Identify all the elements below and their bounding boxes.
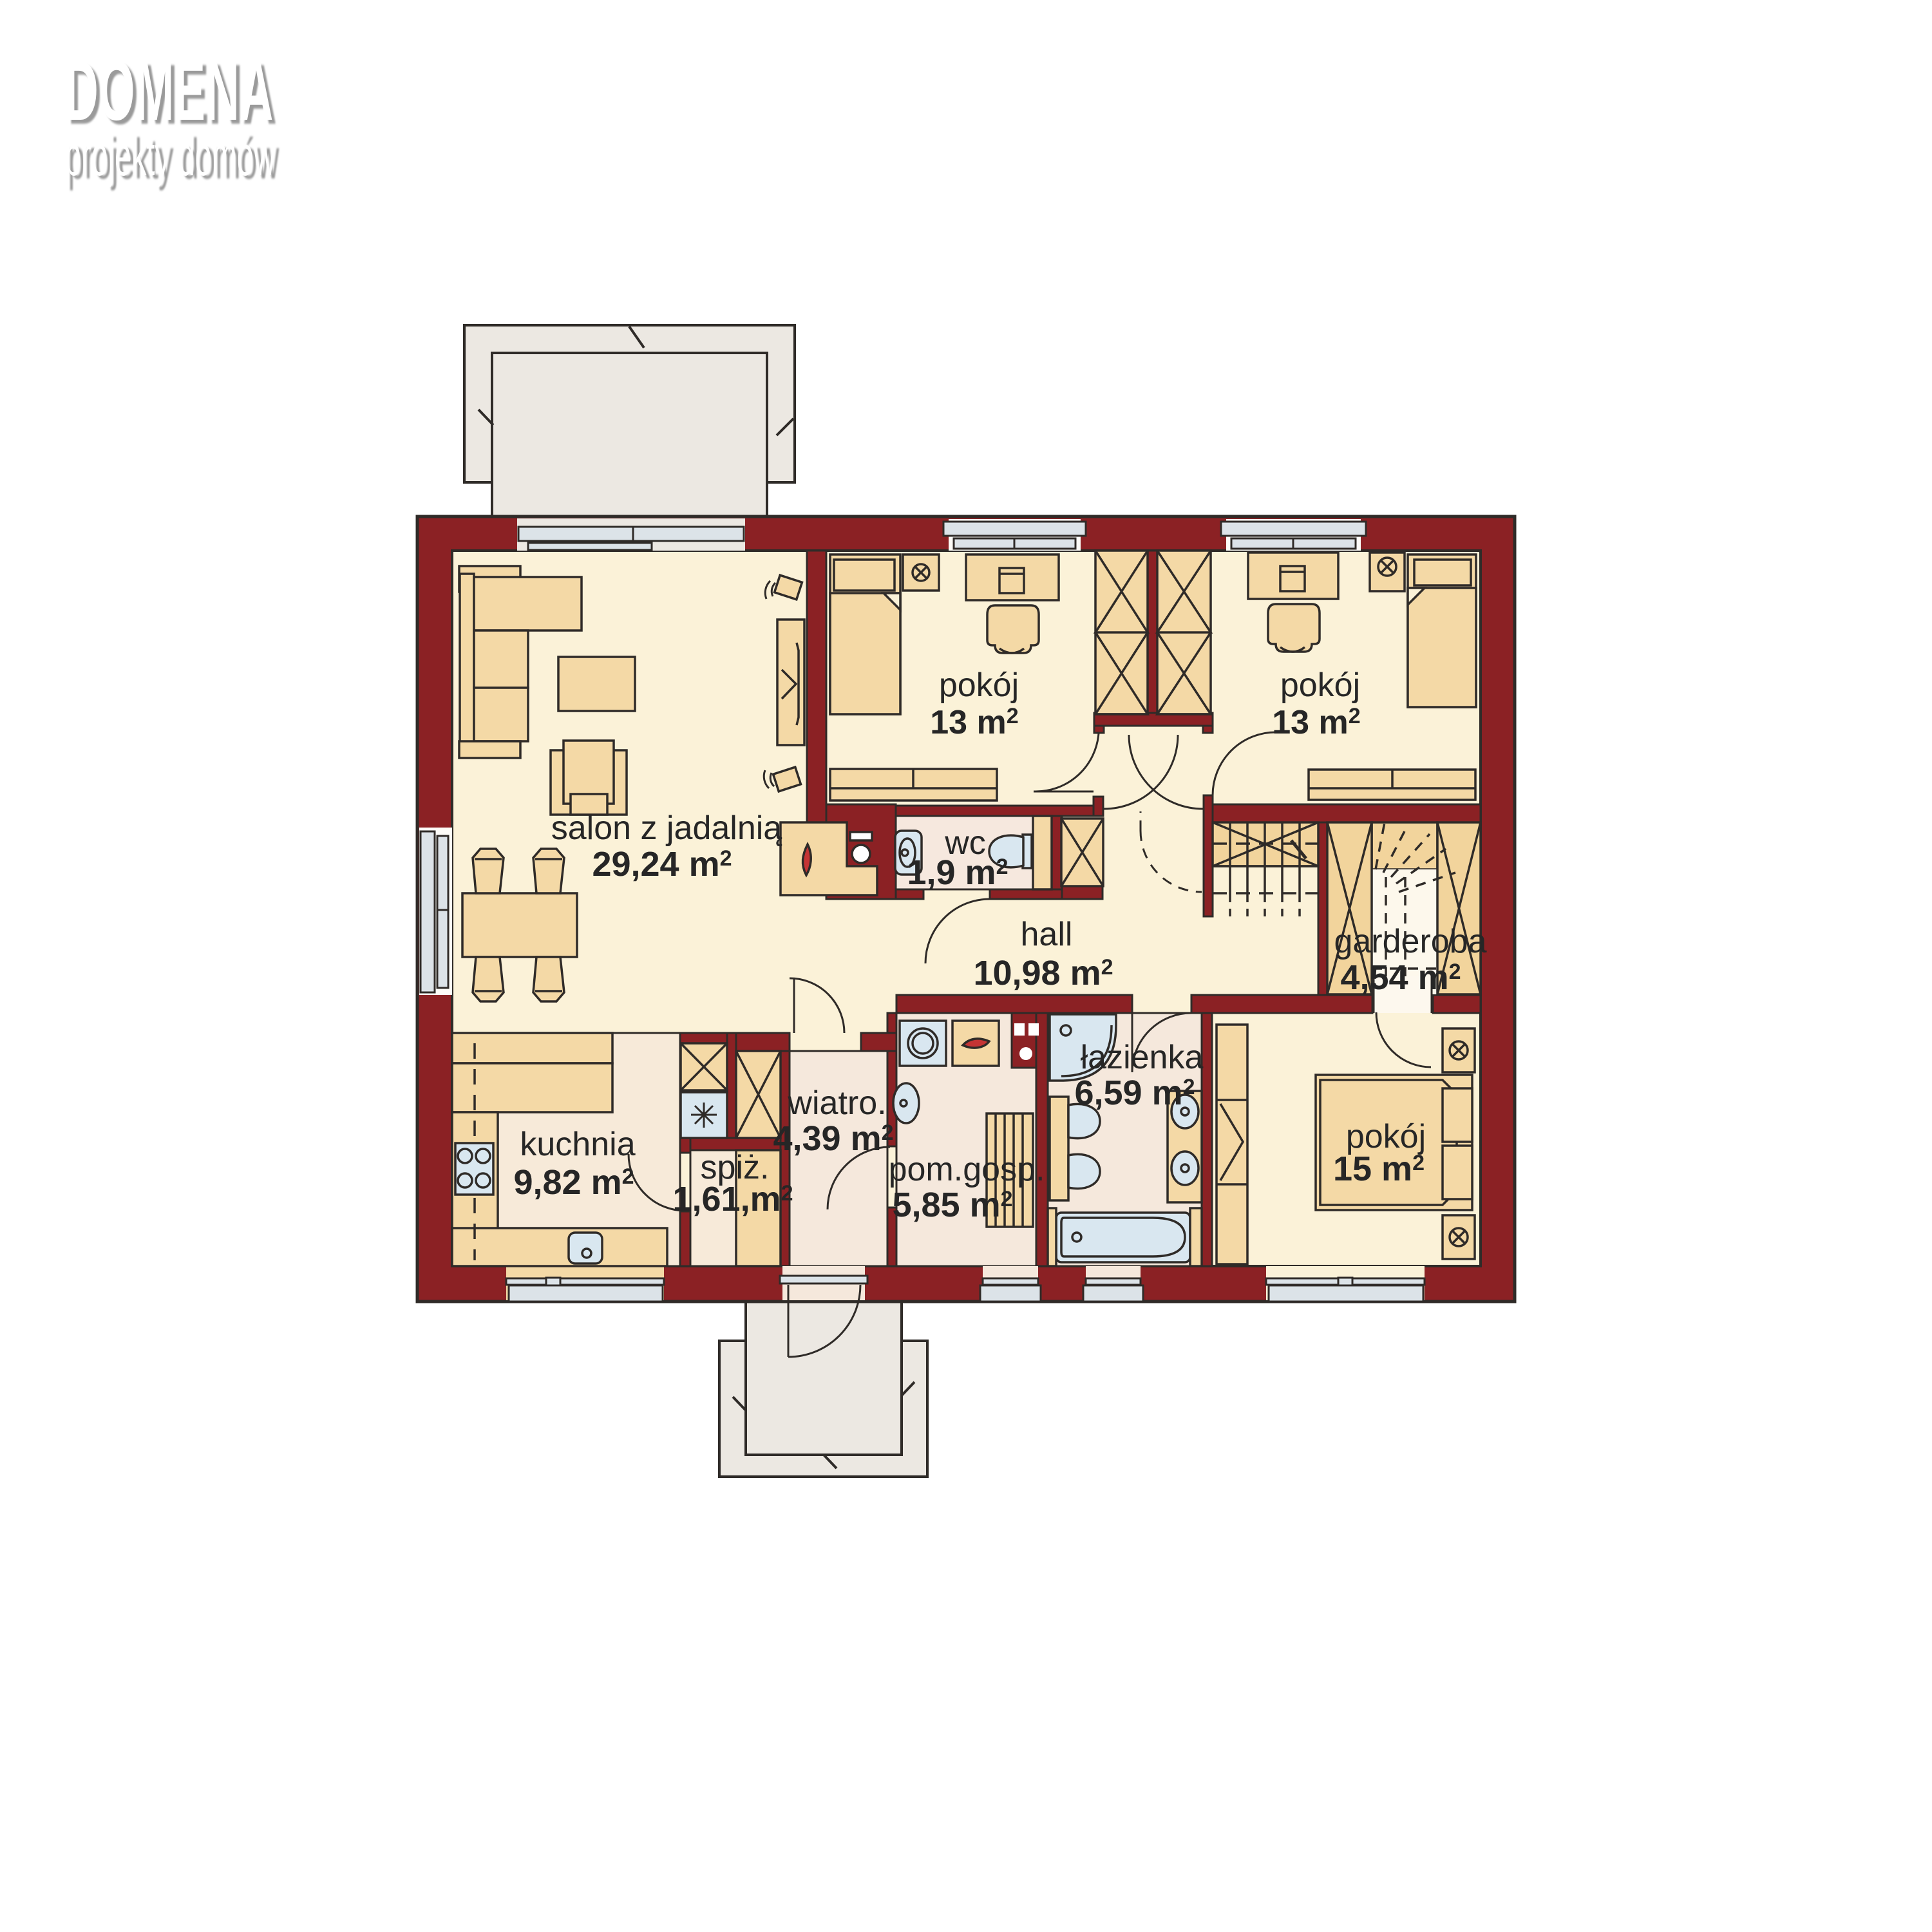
svg-text:projekty domów: projekty domów [64,125,276,188]
svg-text:13 m2: 13 m2 [1272,704,1360,741]
svg-text:4,39 m2: 4,39 m2 [773,1119,893,1158]
svg-text:DOMENA: DOMENA [64,44,273,138]
svg-text:15 m2: 15 m2 [1333,1150,1425,1188]
svg-text:1,61,m2: 1,61,m2 [672,1180,793,1218]
svg-text:salon z jadalnią: salon z jadalnią [551,810,782,847]
svg-text:4,54 m2: 4,54 m2 [1340,958,1461,997]
svg-text:hall: hall [1021,916,1073,953]
svg-text:łazienka: łazienka [1081,1039,1204,1076]
svg-text:13 m2: 13 m2 [930,704,1018,741]
svg-text:pokój: pokój [1280,667,1360,704]
svg-text:garderoba: garderoba [1334,923,1486,960]
svg-text:9,82 m2: 9,82 m2 [513,1163,634,1202]
svg-text:kuchnia: kuchnia [520,1126,635,1163]
svg-text:29,24 m2: 29,24 m2 [592,845,732,884]
svg-text:5,85 m2: 5,85 m2 [892,1186,1012,1224]
svg-text:6,59 m2: 6,59 m2 [1074,1074,1195,1112]
svg-text:10,98 m2: 10,98 m2 [973,954,1113,992]
svg-text:1,9 m2: 1,9 m2 [907,853,1008,892]
svg-text:wiatro.: wiatro. [787,1084,886,1122]
svg-text:pom.gosp.: pom.gosp. [889,1151,1045,1188]
svg-text:pokój: pokój [939,667,1019,704]
